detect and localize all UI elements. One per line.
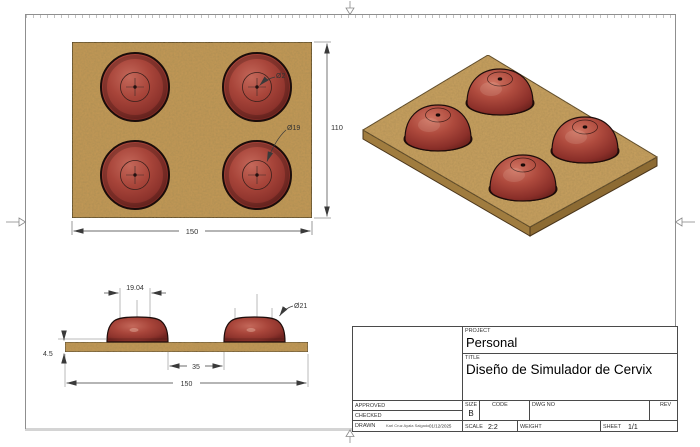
dim-110-lines [314, 42, 331, 218]
side-view: 19.04 Ø21 4.5 35 150 [43, 285, 308, 388]
sheet-cell: SHEET 1/1 [600, 420, 677, 431]
project-value: Personal [466, 336, 517, 349]
sheet-label: SHEET [603, 424, 621, 429]
title-value: Diseño de Simulador de Cervix [466, 363, 652, 377]
dome [101, 141, 169, 209]
dim-dome-diameter: Ø21 [294, 303, 307, 310]
rev-cell: REV [649, 400, 677, 420]
drawn-label: DRAWN [355, 423, 375, 428]
dwg-no-cell: DWG NO [529, 400, 649, 420]
side-view-board [65, 342, 308, 352]
size-value: B [463, 410, 479, 418]
drawing-sheet: 110 150 Ø2 Ø19 [0, 0, 700, 447]
rev-label: REV [660, 402, 671, 407]
weight-label: WEIGHT [520, 424, 542, 429]
checked-cell: CHECKED [353, 410, 462, 420]
isometric-view [363, 55, 657, 236]
side-view-domes [107, 317, 285, 342]
dome [223, 141, 291, 209]
leader-dome-dia [280, 306, 294, 316]
approved-label: APPROVED [355, 403, 385, 408]
title-block: PROJECT Personal TITLE Diseño de Simulad… [352, 326, 678, 432]
dome [223, 53, 291, 121]
scale-label: SCALE [465, 424, 483, 429]
drawn-date: 01/12/2025 [429, 424, 451, 428]
dim-inner-diameter: Ø19 [287, 125, 300, 132]
center-mark-top-icon [346, 1, 354, 15]
weight-cell: WEIGHT [517, 420, 600, 431]
size-cell: SIZE B [462, 400, 479, 420]
dim-board-width: 150 [186, 227, 199, 236]
dim-dome-top-width: 19.04 [126, 285, 144, 292]
approved-cell: APPROVED [353, 400, 462, 410]
checked-label: CHECKED [355, 413, 382, 418]
size-label: SIZE [465, 402, 477, 407]
center-mark-right-icon [676, 218, 696, 226]
dim-hole-diameter: Ø2 [276, 73, 285, 80]
code-label: CODE [492, 402, 508, 407]
border-ruler-ticks [26, 15, 675, 18]
dim-board-height: 110 [331, 123, 343, 132]
title-cell: TITLE Diseño de Simulador de Cervix [462, 353, 677, 400]
dim-dome-spacing: 35 [192, 364, 200, 371]
dwg-no-label: DWG NO [532, 402, 555, 407]
drawn-name: Karl Cruz Ayala Salgado [386, 424, 429, 428]
drawn-cell: DRAWN Karl Cruz Ayala Salgado 01/12/2025 [353, 420, 462, 431]
title-label: TITLE [465, 355, 480, 360]
scale-value: 2:2 [488, 424, 498, 431]
code-cell: CODE [479, 400, 529, 420]
title-block-blank-cell [353, 327, 462, 400]
project-label: PROJECT [465, 328, 490, 333]
scale-cell: SCALE 2:2 [462, 420, 517, 431]
center-mark-left-icon [6, 218, 26, 226]
dim-board-thickness: 4.5 [43, 351, 53, 358]
sheet-value: 1/1 [628, 424, 638, 431]
project-cell: PROJECT Personal [462, 327, 677, 353]
dim-board-length: 150 [181, 381, 193, 388]
dome [101, 53, 169, 121]
top-view: 110 150 Ø2 Ø19 [72, 42, 343, 236]
